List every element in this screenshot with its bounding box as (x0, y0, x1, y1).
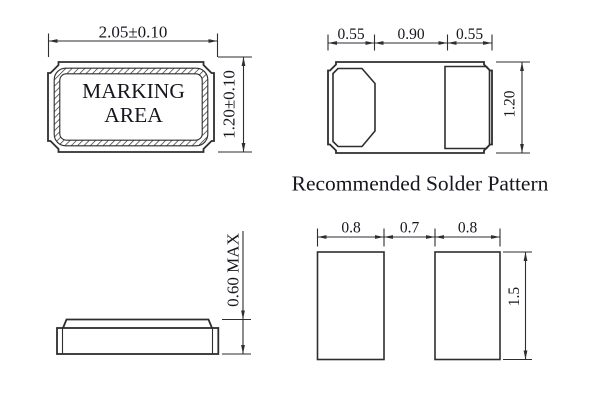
marking-area-line2: AREA (104, 103, 163, 127)
pad-layout-height-dimension: 1.5 (503, 252, 532, 360)
solder-dim-left-label: 0.55 (337, 26, 364, 43)
package-side-view: 0.60 MAX (57, 231, 251, 354)
solder-pattern-title: Recommended Solder Pattern (292, 172, 549, 196)
marking-area-line1: MARKING (82, 79, 185, 103)
side-view-height-label: 0.60 MAX (224, 233, 243, 307)
pad-layout-view: 0.8 0.7 0.8 1.5 (318, 220, 533, 360)
solder-dim-center-label: 0.90 (397, 26, 424, 43)
package-height-label: 1.20±0.10 (220, 70, 239, 139)
pad-height-label: 1.5 (506, 287, 523, 307)
pad-layout-left-pad (318, 252, 385, 360)
side-view-body (57, 328, 218, 354)
package-top-view: MARKING AREA 2.05±0.10 1.20±0.10 (48, 23, 252, 153)
solder-left-electrode (333, 69, 375, 147)
package-width-dimension: 2.05±0.10 (49, 23, 218, 58)
side-view-lid (63, 320, 212, 329)
pad-dim-right-label: 0.8 (458, 220, 478, 237)
side-view-height-dimension: 0.60 MAX (222, 231, 251, 354)
pad-dim-left-label: 0.8 (341, 220, 361, 237)
pad-layout-right-pad (435, 252, 500, 360)
solder-dim-right-label: 0.55 (456, 26, 483, 43)
solder-right-electrode (445, 67, 490, 149)
solder-height-label: 1.20 (502, 90, 519, 117)
crystal-package-drawing: MARKING AREA 2.05±0.10 1.20±0.10 (0, 0, 600, 403)
solder-pattern-view: 0.55 0.90 0.55 1.20 Recommended Solder P… (292, 26, 549, 196)
package-width-label: 2.05±0.10 (99, 23, 168, 42)
solder-pattern-outline (328, 62, 492, 153)
package-height-dimension: 1.20±0.10 (218, 57, 252, 152)
pad-layout-width-dimensions: 0.8 0.7 0.8 (318, 220, 501, 247)
pad-dim-gap-label: 0.7 (400, 220, 420, 237)
solder-pattern-width-dimensions: 0.55 0.90 0.55 (328, 26, 492, 51)
technical-drawing-sheet: MARKING AREA 2.05±0.10 1.20±0.10 (0, 0, 600, 403)
solder-pattern-height-dimension: 1.20 (496, 62, 530, 153)
